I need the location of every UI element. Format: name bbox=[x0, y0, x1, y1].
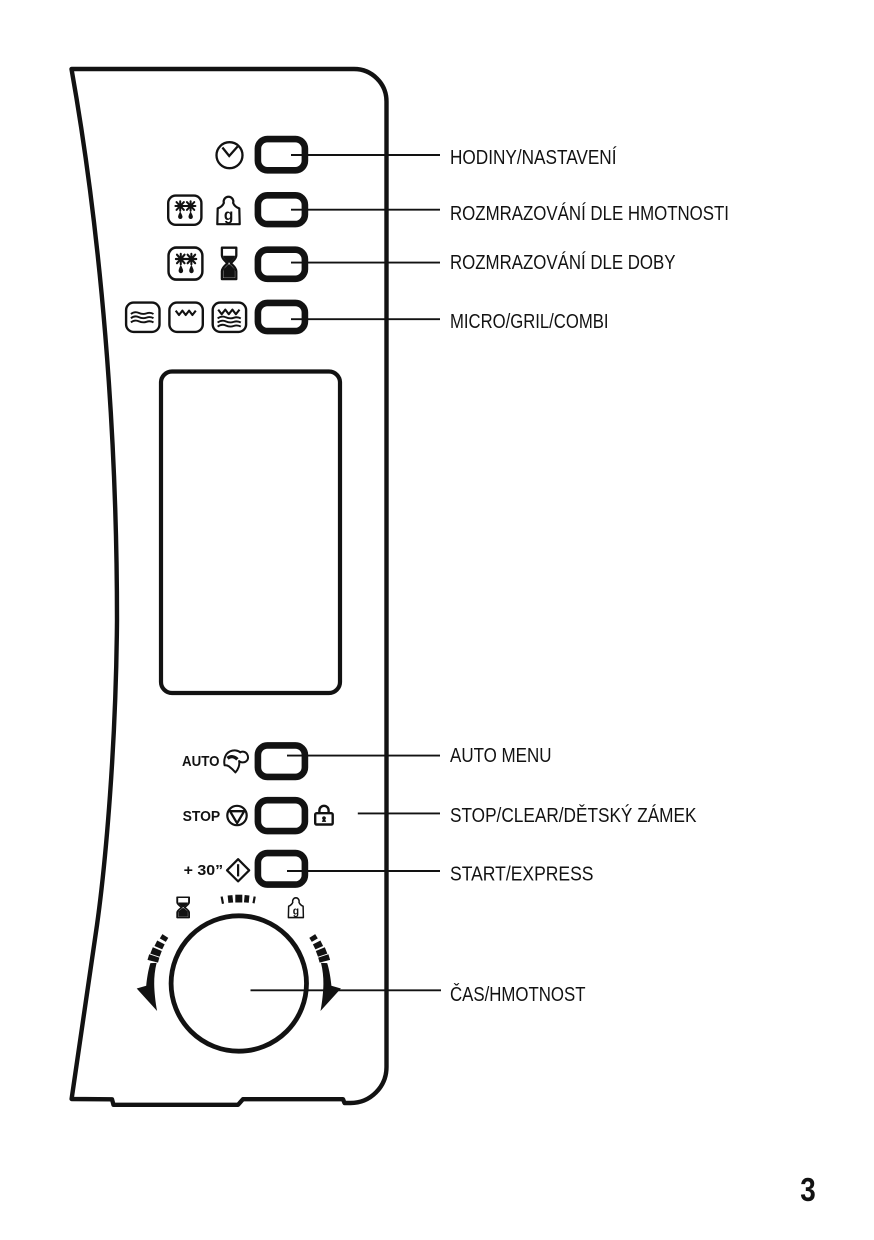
svg-text:+ 30”: + 30” bbox=[184, 862, 224, 879]
svg-text:ČAS/HMOTNOST: ČAS/HMOTNOST bbox=[450, 983, 586, 1006]
svg-text:HODINY/NASTAVENÍ: HODINY/NASTAVENÍ bbox=[450, 146, 617, 169]
svg-text:AUTO MENU: AUTO MENU bbox=[450, 745, 552, 767]
svg-text:ROZMRAZOVÁNÍ DLE DOBY: ROZMRAZOVÁNÍ DLE DOBY bbox=[450, 251, 676, 274]
svg-text:3: 3 bbox=[800, 1172, 816, 1209]
svg-text:g: g bbox=[224, 207, 233, 224]
svg-text:AUTO: AUTO bbox=[182, 753, 220, 770]
svg-text:START/EXPRESS: START/EXPRESS bbox=[450, 864, 594, 886]
svg-text:STOP: STOP bbox=[183, 808, 221, 825]
svg-text:MICRO/GRIL/COMBI: MICRO/GRIL/COMBI bbox=[450, 311, 609, 333]
svg-text:STOP/CLEAR/DĚTSKÝ ZÁMEK: STOP/CLEAR/DĚTSKÝ ZÁMEK bbox=[450, 804, 697, 827]
svg-text:ROZMRAZOVÁNÍ DLE HMOTNOSTI: ROZMRAZOVÁNÍ DLE HMOTNOSTI bbox=[450, 202, 729, 225]
